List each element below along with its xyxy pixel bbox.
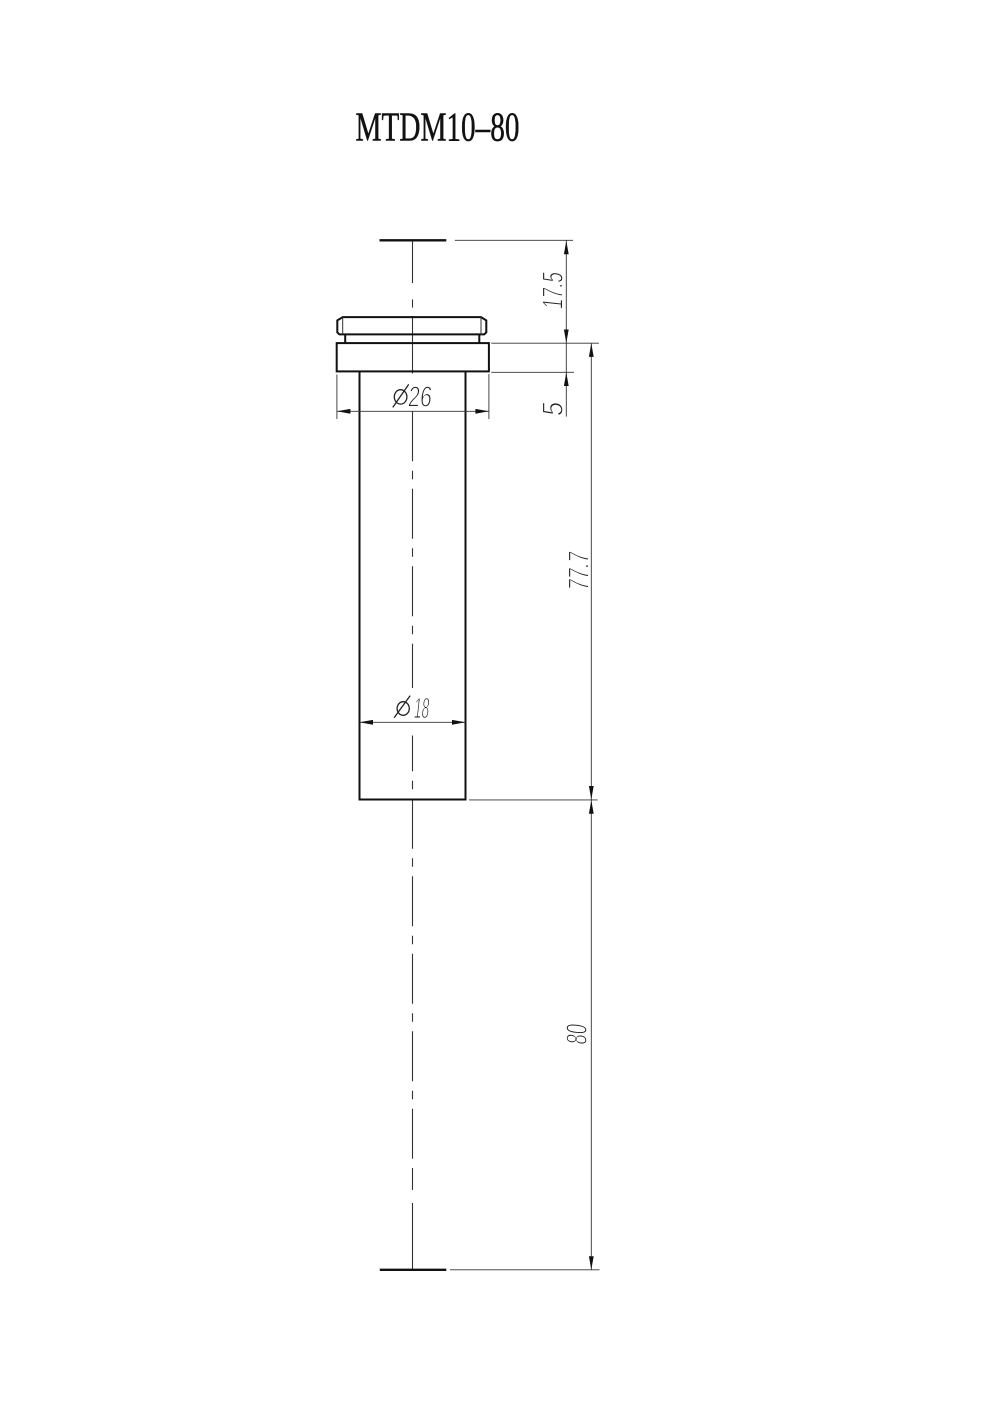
svg-text:77.7: 77.7 bbox=[564, 550, 596, 592]
svg-text:80: 80 bbox=[562, 1022, 594, 1046]
svg-text:MTDM10–80: MTDM10–80 bbox=[356, 104, 520, 150]
svg-text:17.5: 17.5 bbox=[538, 270, 570, 310]
svg-text:26: 26 bbox=[407, 382, 434, 414]
